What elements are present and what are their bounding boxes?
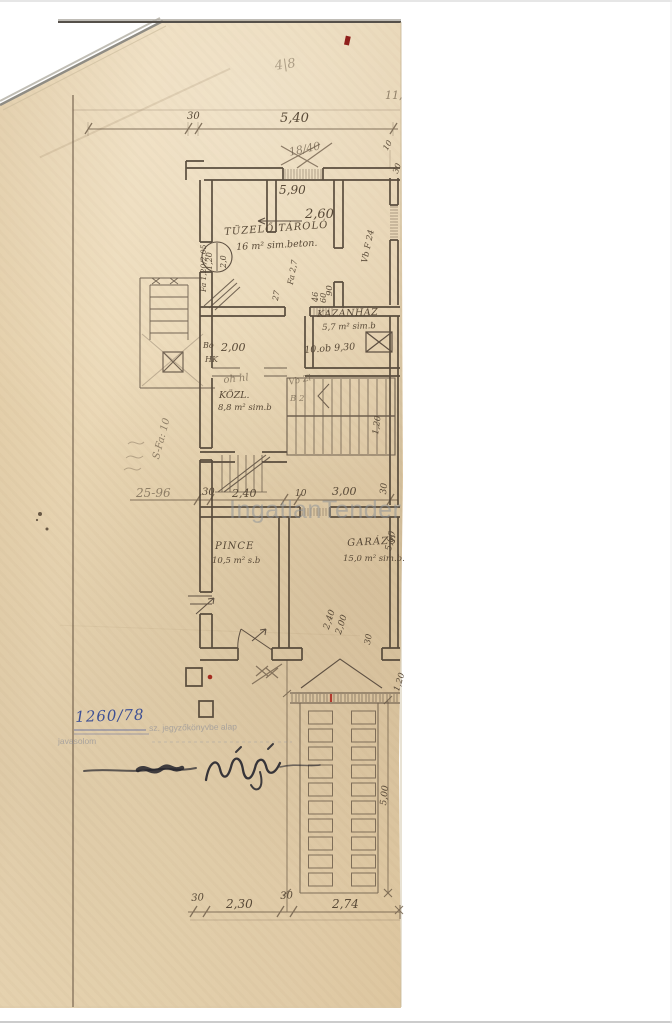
room-area-kazanhaz: 5,7 m² sim.b bbox=[322, 322, 376, 332]
note-bo: Bo bbox=[203, 342, 214, 350]
dim-label-60: 60 bbox=[320, 293, 328, 303]
dim-label-bot-230: 2,30 bbox=[226, 898, 253, 910]
room-area-pince: 10,5 m² s.b bbox=[212, 557, 260, 566]
note-2596: 25-96 bbox=[136, 487, 171, 499]
dim-label-gd-30: 30 bbox=[364, 633, 374, 645]
ink-specks bbox=[36, 512, 49, 531]
corner-note: 11, bbox=[385, 90, 403, 101]
registry-number: 1260/78 bbox=[75, 708, 145, 725]
room-name-kozl: KÖZL. bbox=[219, 391, 250, 401]
dim-label-top-30: 30 bbox=[187, 112, 200, 122]
dim-label-590: 5,90 bbox=[279, 184, 306, 196]
registry-underline bbox=[74, 730, 149, 734]
dim-label-bot-30a: 30 bbox=[191, 893, 204, 904]
dim-label-200: 2,00 bbox=[221, 342, 246, 353]
dim-label-bot-30b: 30 bbox=[280, 891, 293, 902]
room-area-kozl: 8,8 m² sim.b bbox=[218, 404, 272, 413]
note-b2: B 2 bbox=[290, 395, 304, 404]
staircase bbox=[212, 368, 395, 492]
room-name-pince: PINCE bbox=[215, 542, 254, 552]
stamp-text-line2: javasolom bbox=[58, 737, 96, 746]
signature-scribble bbox=[84, 744, 320, 789]
room-name-kazanhaz: KAZÁNHÁZ bbox=[317, 308, 378, 320]
red-dot bbox=[208, 675, 213, 680]
dim-label-mid-30: 30 bbox=[202, 488, 215, 498]
dim-label-bot-274: 2,74 bbox=[332, 898, 359, 910]
note-hk: HK bbox=[205, 356, 218, 364]
ramp-grid bbox=[300, 703, 378, 893]
red-mark bbox=[344, 36, 351, 46]
room-area-garazs: 15,0 m² sim.b. bbox=[343, 555, 405, 564]
garage-door-open bbox=[301, 659, 382, 688]
stamp-text-line1: sz. jegyzőkönyvbe alap bbox=[149, 722, 237, 732]
driveway-strip bbox=[290, 693, 400, 703]
door-width-label: 1,20 bbox=[206, 252, 214, 270]
watermark: IngatlanTender bbox=[229, 498, 401, 523]
dim-label-mid-30r: 30 bbox=[380, 483, 390, 495]
door-height-label: 2,0 bbox=[220, 255, 228, 268]
pencil-note-top: 4|8 bbox=[274, 57, 297, 73]
scanned-floorplan-page: 4|8 11, 30 5,40 18/40 5,90 2,60 TÜZELŐ T… bbox=[0, 0, 672, 1024]
dim-label-top-540: 5,40 bbox=[280, 112, 309, 125]
fixtures bbox=[188, 218, 392, 688]
pince-door-swing bbox=[238, 629, 272, 650]
terrace-stair bbox=[140, 278, 240, 388]
dim-label-260: 2,60 bbox=[305, 208, 334, 221]
